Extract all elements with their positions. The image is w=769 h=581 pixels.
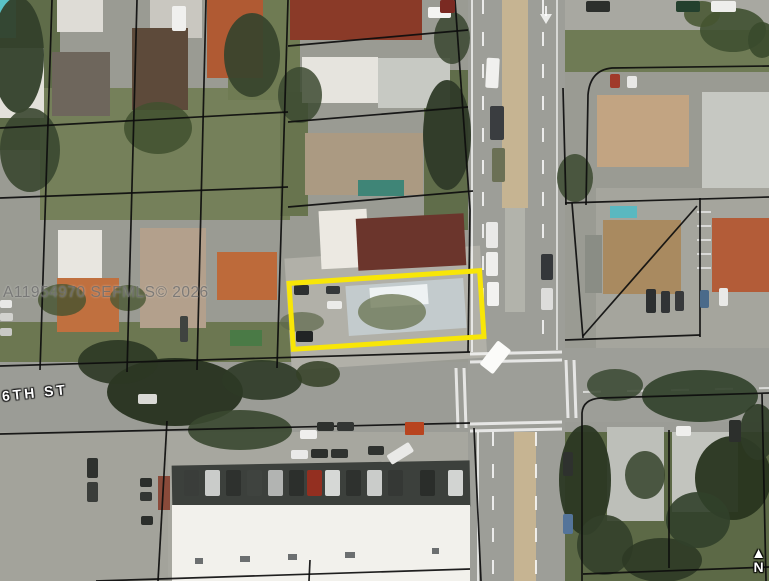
tree [434, 12, 470, 64]
building-roof-terracotta [217, 252, 277, 300]
car [485, 58, 500, 89]
crosswalk-line [470, 422, 562, 424]
car [0, 313, 13, 321]
building-roof-red [290, 0, 422, 40]
car [138, 394, 157, 404]
car-in-carport [247, 470, 262, 496]
car [610, 74, 620, 88]
car [326, 286, 340, 294]
crosswalk-line [464, 368, 466, 428]
median-north [502, 0, 528, 208]
car [676, 1, 700, 12]
brush [358, 294, 426, 330]
mls-watermark: A11954970 SEFMLS© 2026 [3, 284, 209, 302]
car [563, 514, 573, 534]
car [729, 420, 741, 442]
crosswalk-line [456, 368, 458, 428]
car-in-carport [184, 470, 199, 496]
car [294, 285, 309, 295]
car [140, 492, 152, 501]
building-roof-maroon [356, 213, 467, 271]
car [317, 422, 334, 431]
median-paint [505, 208, 525, 312]
roof-vent [432, 548, 439, 554]
car-in-carport [289, 470, 304, 496]
car-in-carport [388, 470, 403, 496]
crosswalk-line [470, 352, 562, 354]
car [141, 516, 153, 525]
car [300, 430, 317, 439]
parking-lot-bottom-left [0, 428, 172, 581]
car-in-carport [226, 470, 241, 496]
car [311, 449, 328, 458]
median-south [514, 432, 536, 581]
car-in-carport [420, 470, 435, 496]
north-label: N [753, 560, 763, 574]
building-roof [57, 0, 103, 32]
car-in-carport [268, 470, 283, 496]
crosswalk-line [574, 360, 576, 418]
building-roof [52, 52, 110, 116]
car [627, 76, 637, 88]
car [337, 422, 354, 431]
car [711, 1, 736, 12]
car-in-carport [346, 470, 361, 496]
roof-vent [195, 558, 203, 564]
building-green-gate [230, 330, 262, 346]
car [140, 478, 152, 487]
car [676, 426, 691, 436]
car [368, 446, 384, 455]
car [172, 6, 186, 31]
north-indicator: ▲ N [748, 546, 769, 574]
car [487, 282, 499, 306]
car [291, 450, 308, 459]
car [490, 106, 504, 140]
car [541, 254, 553, 280]
car-in-carport [367, 470, 382, 496]
roof-vent [345, 552, 355, 558]
car [0, 328, 12, 336]
building-roof-tan [597, 95, 689, 167]
car-in-carport [307, 470, 322, 496]
car [486, 222, 498, 248]
building-roof [585, 235, 602, 293]
roof-vent [288, 554, 297, 560]
car [719, 288, 728, 306]
brush [280, 312, 324, 332]
aerial-listing-photo: A11954970 SEFMLS© 2026 6TH ST ▲ N [0, 0, 769, 581]
building-awning-teal [358, 180, 404, 196]
tree [625, 451, 665, 499]
car [87, 482, 98, 502]
car [563, 452, 573, 476]
building-roof [132, 28, 188, 110]
car [440, 0, 455, 13]
parcel-line [309, 560, 310, 581]
building-pool-small [610, 206, 637, 218]
car-in-carport [448, 470, 463, 496]
building-roof-brown [603, 220, 681, 294]
car [492, 148, 505, 182]
car [486, 252, 498, 276]
tree [666, 492, 730, 548]
car [296, 331, 313, 342]
car [661, 291, 670, 313]
car [700, 290, 709, 308]
roof-vent [240, 556, 250, 562]
building-roof [58, 230, 102, 278]
crosswalk-line [566, 360, 568, 418]
building-roof-terracotta [712, 218, 769, 292]
crosswalk-line [470, 429, 562, 431]
car [586, 1, 610, 12]
car [331, 449, 348, 458]
dumpster [405, 422, 424, 435]
car [541, 288, 553, 310]
car [180, 316, 188, 342]
car [327, 301, 342, 309]
car-in-carport [205, 470, 220, 496]
tree [222, 360, 302, 400]
tree [224, 13, 280, 97]
building-roof [702, 92, 769, 188]
car-in-carport [325, 470, 340, 496]
car [87, 458, 98, 478]
tree [296, 361, 340, 387]
building-roof [140, 228, 206, 328]
tree [0, 108, 60, 192]
car [646, 289, 656, 313]
car [675, 291, 684, 311]
